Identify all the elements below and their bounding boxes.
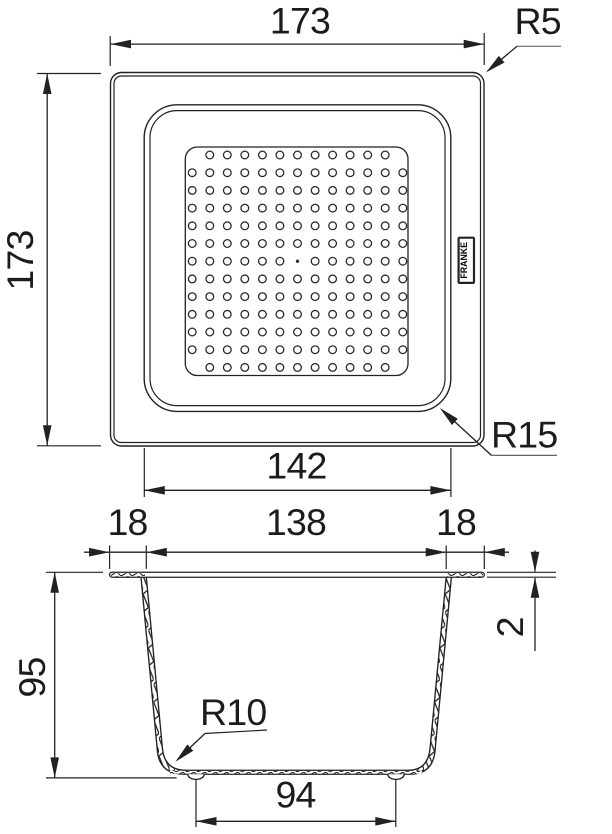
svg-text:2: 2: [489, 617, 531, 637]
svg-text:138: 138: [266, 501, 326, 543]
svg-text:173: 173: [0, 230, 41, 290]
svg-text:18: 18: [107, 501, 147, 543]
svg-text:R5: R5: [515, 0, 561, 42]
svg-text:18: 18: [436, 501, 476, 543]
svg-text:R10: R10: [200, 691, 266, 733]
svg-text:95: 95: [11, 657, 53, 697]
svg-text:FRANKE: FRANKE: [459, 242, 469, 279]
svg-text:142: 142: [266, 445, 326, 487]
svg-text:94: 94: [275, 774, 315, 816]
svg-text:173: 173: [270, 0, 330, 42]
svg-text:R15: R15: [491, 414, 557, 456]
